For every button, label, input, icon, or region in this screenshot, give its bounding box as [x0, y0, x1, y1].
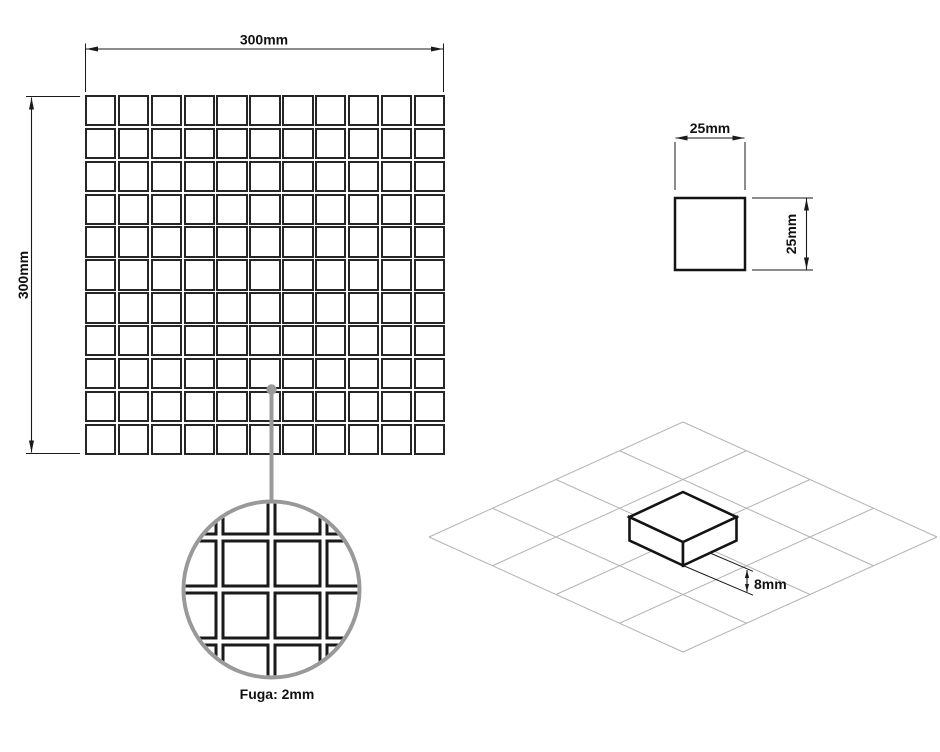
tile-width-label: 25mm [690, 120, 730, 136]
sheet-width-label: 300mm [240, 32, 288, 48]
extension-line [710, 553, 753, 571]
magnified-tile [223, 541, 268, 586]
grout-detail: Fuga: 2mm [171, 384, 372, 702]
magnified-tile [275, 593, 320, 638]
tile-square [675, 198, 745, 270]
drawing-overlay: 8mm 300mm 300mm 25mm [0, 0, 940, 752]
sheet-width-dimension: 300mm [86, 32, 444, 93]
magnified-tile [223, 593, 268, 638]
extension-line [683, 566, 753, 596]
tile-detail: 25mm 25mm [675, 120, 813, 270]
sheet-height-dimension: 300mm [15, 97, 80, 454]
technical-drawing-canvas: 8mm 300mm 300mm 25mm [0, 0, 940, 752]
tile-height-dimension: 25mm [752, 198, 813, 270]
tile-height-label: 25mm [783, 214, 799, 254]
grout-label: Fuga: 2mm [240, 686, 315, 702]
sheet-height-label: 300mm [15, 251, 31, 299]
magnifier-circle [184, 502, 360, 678]
magnified-tile [275, 541, 320, 586]
tile-width-dimension: 25mm [675, 120, 745, 190]
isometric-view: 8mm [429, 422, 937, 652]
leader-dot [266, 384, 276, 394]
thickness-label: 8mm [754, 576, 787, 592]
